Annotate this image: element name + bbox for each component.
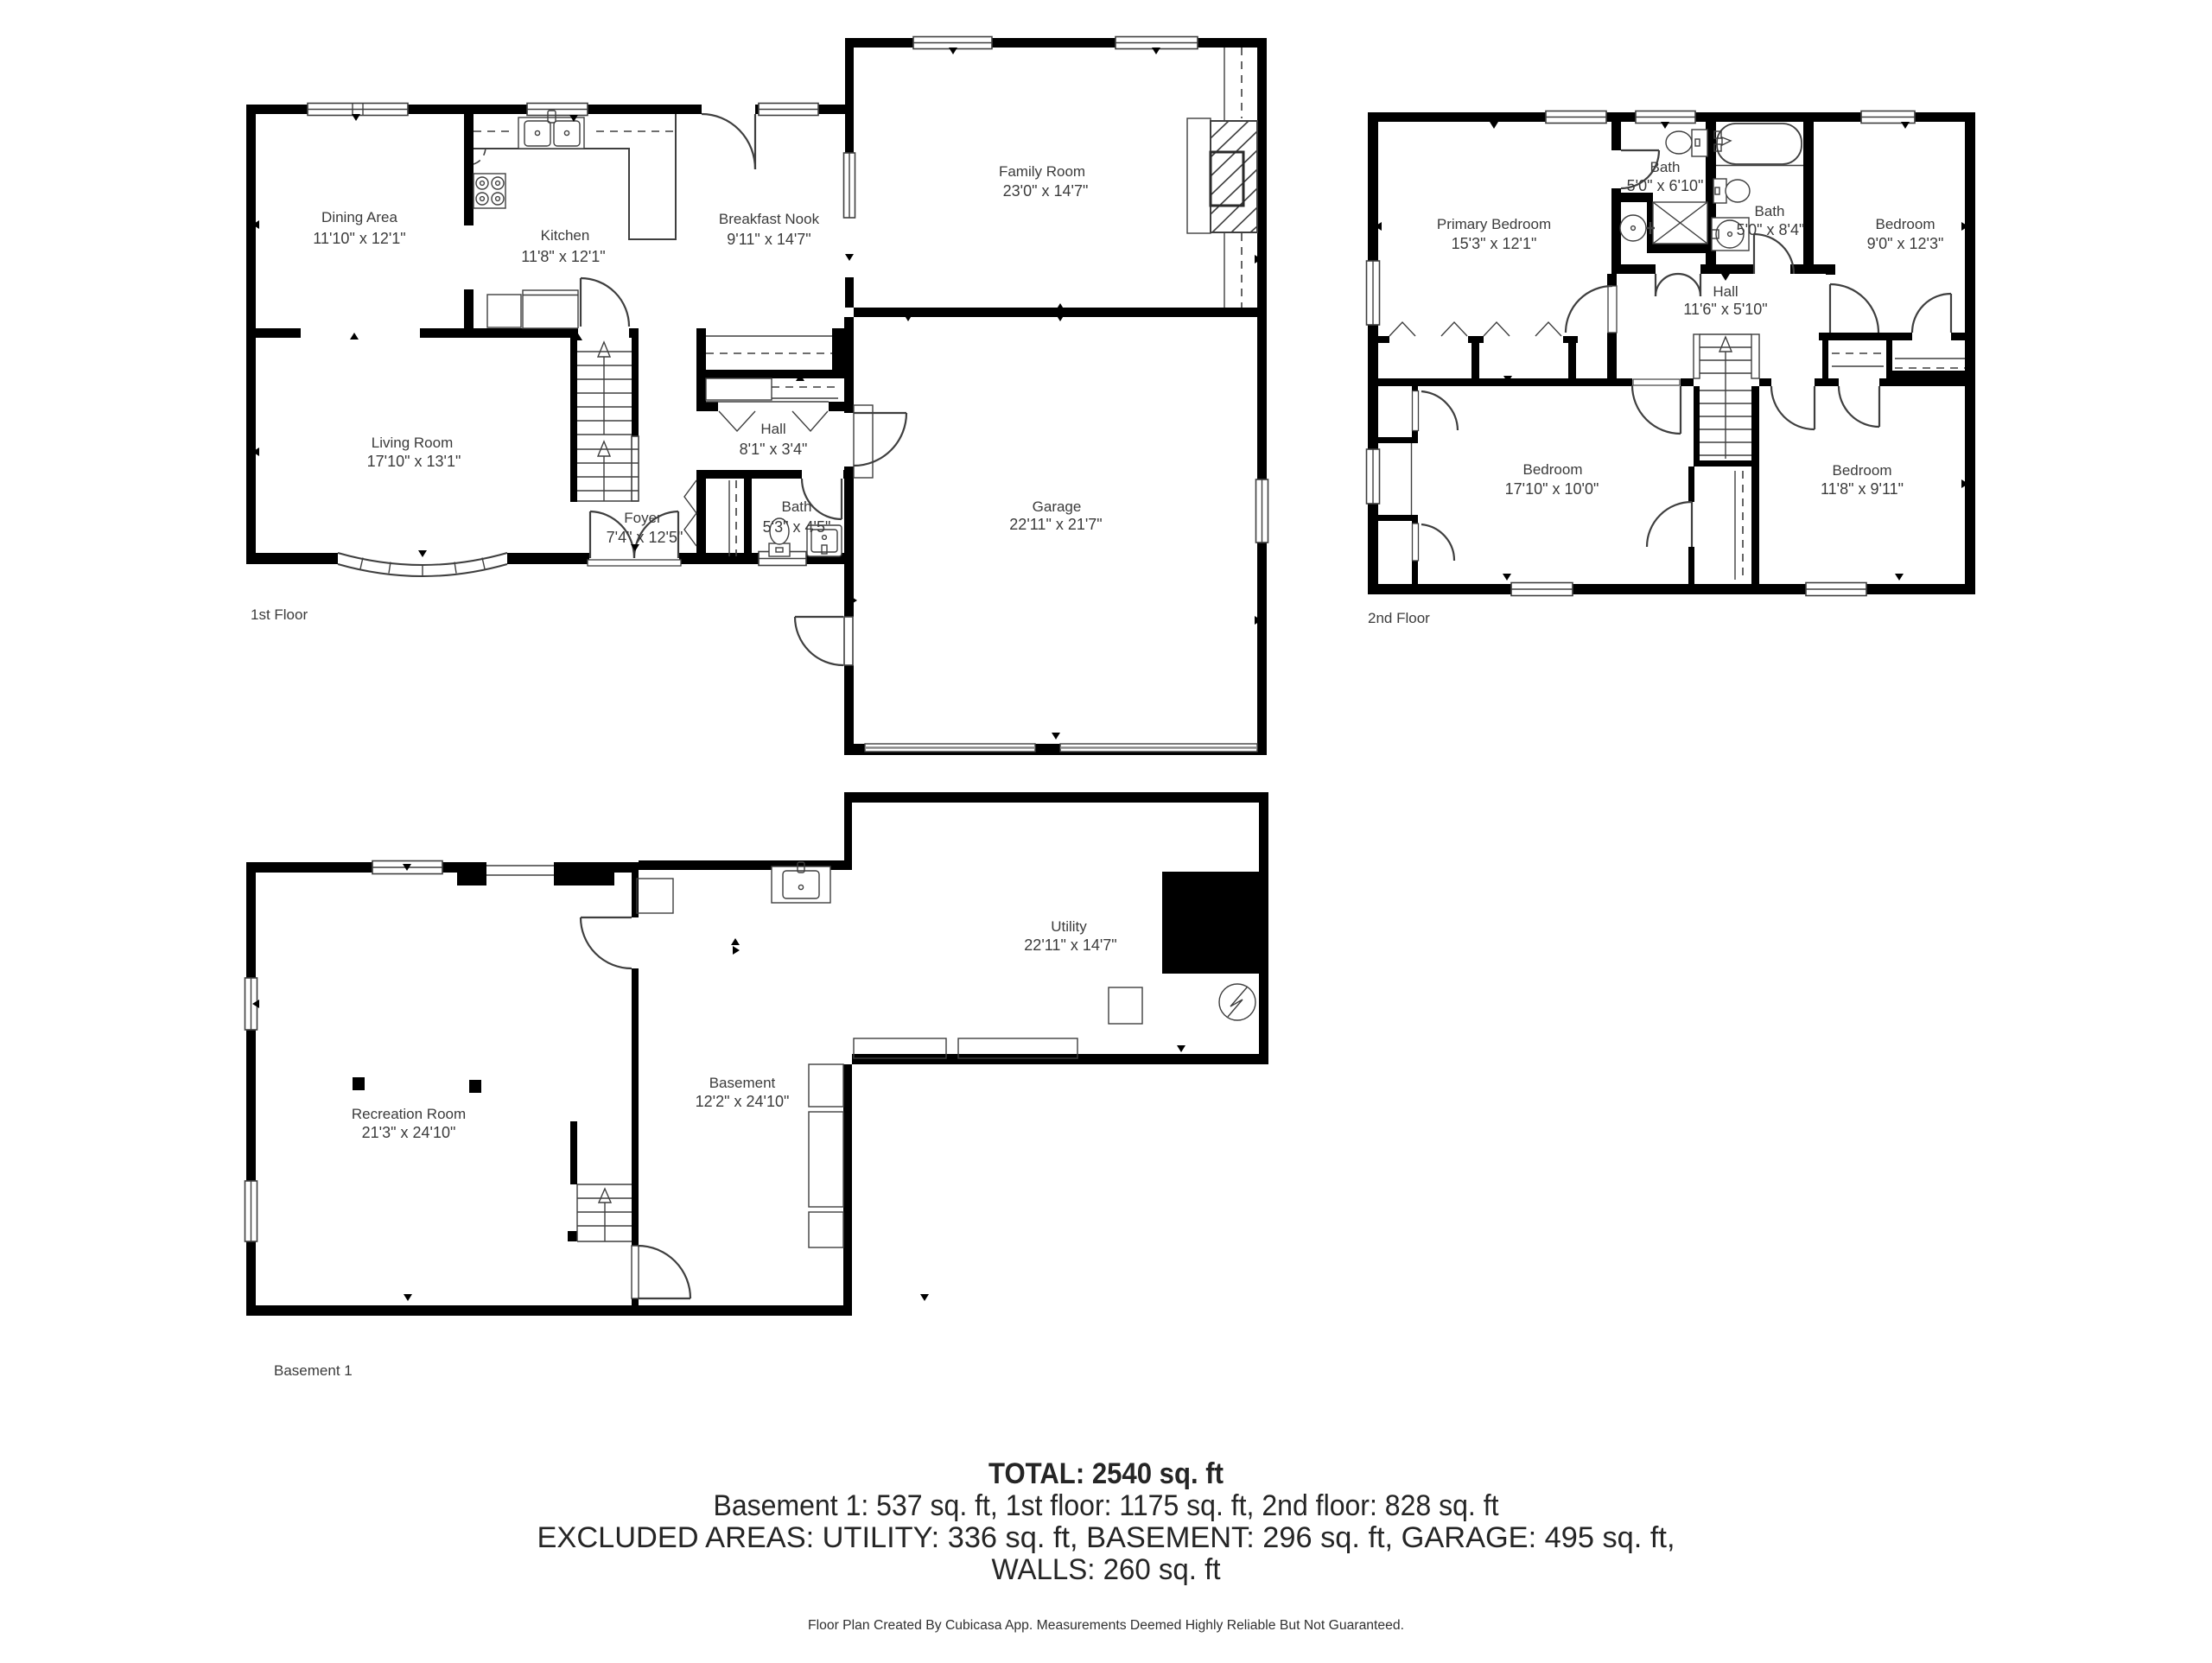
svg-text:17'10" x 10'0": 17'10" x 10'0"	[1505, 480, 1599, 498]
svg-text:Dining Area: Dining Area	[321, 209, 397, 225]
svg-text:Breakfast Nook: Breakfast Nook	[719, 211, 820, 227]
svg-text:11'8" x 9'11": 11'8" x 9'11"	[1821, 480, 1904, 498]
svg-text:5'0" x 6'10": 5'0" x 6'10"	[1627, 177, 1704, 194]
svg-text:Bath: Bath	[782, 498, 812, 515]
svg-text:EXCLUDED AREAS: UTILITY: 336 s: EXCLUDED AREAS: UTILITY: 336 sq. ft, BAS…	[537, 1521, 1675, 1554]
svg-text:Primary Bedroom: Primary Bedroom	[1437, 216, 1551, 232]
svg-text:Hall: Hall	[1713, 283, 1738, 300]
svg-text:22'11" x 14'7": 22'11" x 14'7"	[1024, 936, 1116, 954]
svg-text:Utility: Utility	[1051, 918, 1087, 935]
svg-text:8'1" x 3'4": 8'1" x 3'4"	[740, 441, 808, 458]
svg-text:Basement: Basement	[709, 1075, 776, 1091]
svg-text:Recreation Room: Recreation Room	[352, 1106, 466, 1122]
svg-text:Living Room: Living Room	[372, 435, 454, 451]
svg-text:Bedroom: Bedroom	[1833, 462, 1892, 479]
svg-text:TOTAL: 2540 sq. ft: TOTAL: 2540 sq. ft	[988, 1457, 1224, 1490]
svg-text:Family Room: Family Room	[999, 163, 1085, 180]
svg-text:11'10" x 12'1": 11'10" x 12'1"	[313, 230, 405, 247]
svg-text:WALLS: 260 sq. ft: WALLS: 260 sq. ft	[992, 1553, 1222, 1586]
svg-text:12'2" x 24'10": 12'2" x 24'10"	[696, 1093, 790, 1110]
svg-text:Floor Plan Created By Cubicasa: Floor Plan Created By Cubicasa App. Meas…	[808, 1618, 1404, 1633]
svg-text:11'8" x 12'1": 11'8" x 12'1"	[521, 248, 605, 265]
svg-text:2nd Floor: 2nd Floor	[1368, 610, 1430, 626]
svg-text:7'4" x 12'5": 7'4" x 12'5"	[607, 529, 683, 546]
svg-text:Bedroom: Bedroom	[1523, 461, 1583, 478]
svg-text:9'0" x 12'3": 9'0" x 12'3"	[1867, 235, 1944, 252]
svg-text:Basement 1: Basement 1	[274, 1362, 353, 1379]
svg-text:23'0" x 14'7": 23'0" x 14'7"	[1003, 182, 1089, 200]
svg-text:22'11" x 21'7": 22'11" x 21'7"	[1009, 516, 1102, 533]
svg-text:5'3" x 4'5": 5'3" x 4'5"	[763, 518, 831, 536]
svg-text:Basement 1: 537 sq. ft, 1st fl: Basement 1: 537 sq. ft, 1st floor: 1175 …	[714, 1489, 1500, 1522]
svg-text:Garage: Garage	[1033, 498, 1082, 515]
svg-text:Bath: Bath	[1650, 159, 1681, 175]
svg-text:Foyer: Foyer	[624, 510, 662, 526]
svg-text:5'0" x 8'4": 5'0" x 8'4"	[1737, 221, 1805, 238]
svg-text:21'3" x 24'10": 21'3" x 24'10"	[362, 1124, 456, 1141]
svg-text:17'10" x 13'1": 17'10" x 13'1"	[367, 453, 461, 470]
svg-text:15'3" x 12'1": 15'3" x 12'1"	[1452, 235, 1537, 252]
svg-text:11'6" x 5'10": 11'6" x 5'10"	[1683, 301, 1767, 318]
svg-text:Hall: Hall	[760, 421, 785, 437]
svg-text:Kitchen: Kitchen	[541, 227, 590, 244]
svg-text:1st Floor: 1st Floor	[251, 606, 308, 623]
svg-text:Bedroom: Bedroom	[1876, 216, 1935, 232]
svg-text:9'11" x 14'7": 9'11" x 14'7"	[727, 231, 810, 248]
svg-text:Bath: Bath	[1755, 203, 1785, 219]
